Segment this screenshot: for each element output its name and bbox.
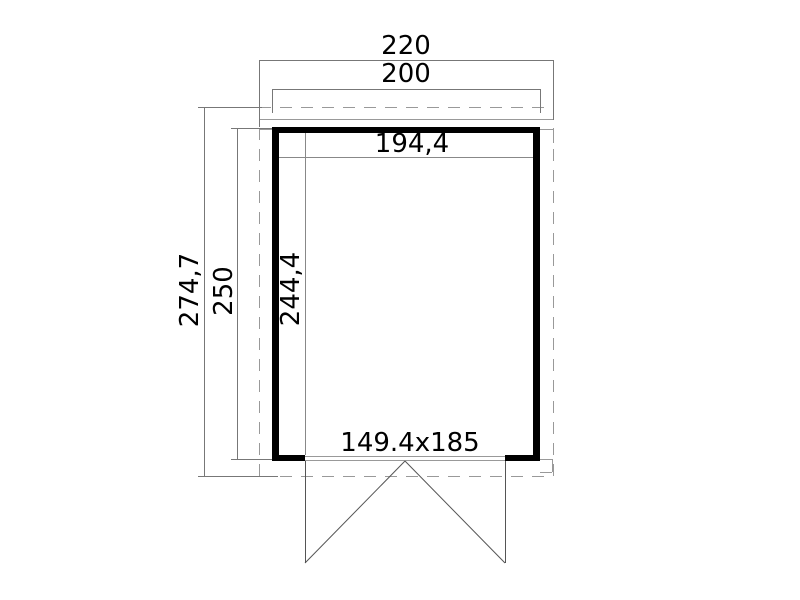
floor-plan: 220 200 194,4 274,7 250 244,4 149.4x185 (0, 0, 800, 600)
dim-label-door-size: 149.4x185 (340, 430, 479, 456)
dim-label-interior-depth: 244,4 (278, 252, 304, 326)
dim-label-overall-width: 220 (381, 33, 431, 59)
dim-label-wall-width: 200 (381, 61, 431, 87)
dim-label-interior-width: 194,4 (375, 131, 449, 157)
door-swing-lines (0, 0, 800, 600)
dim-label-overall-depth: 274,7 (177, 253, 203, 327)
dim-label-wall-depth: 250 (211, 266, 237, 316)
